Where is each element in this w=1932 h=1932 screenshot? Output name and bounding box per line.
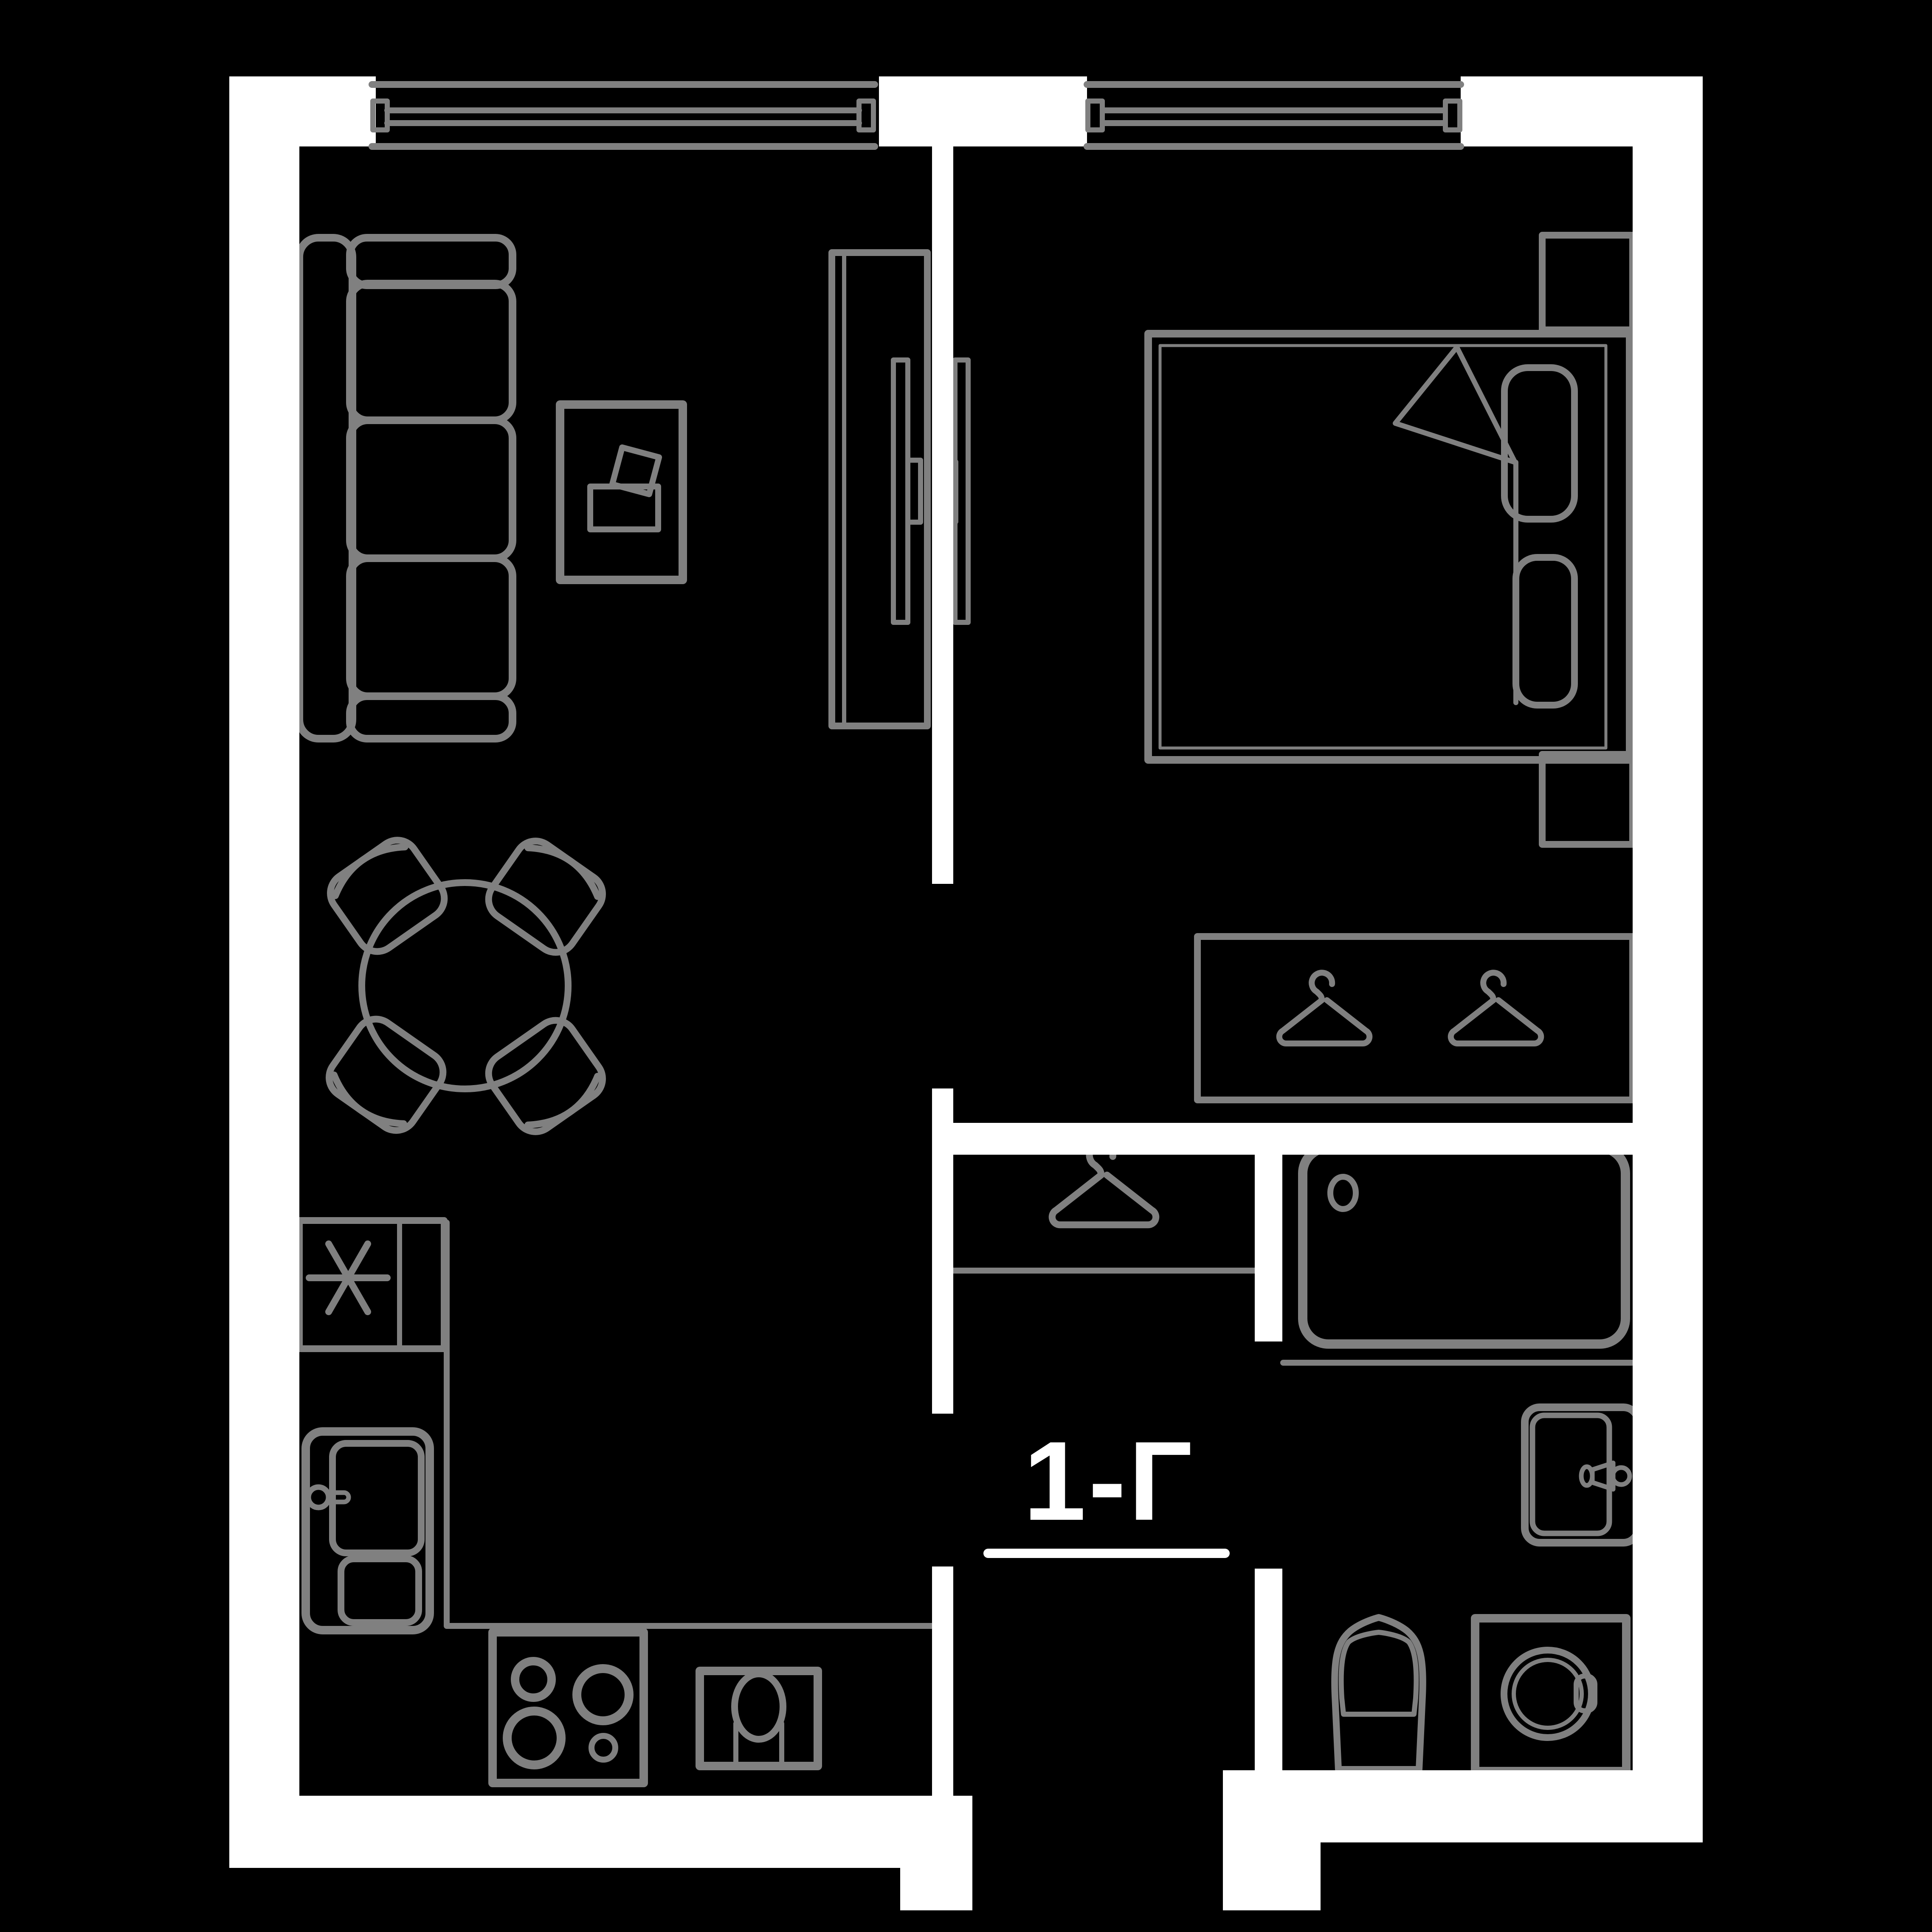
hanger-icon — [1279, 973, 1370, 1043]
tv-unit — [832, 253, 927, 726]
bathtub-drain-icon — [1330, 1177, 1356, 1209]
sink-basin-main — [332, 1443, 421, 1553]
kitchen-counter-line — [447, 1223, 932, 1626]
washing-machine-body — [1475, 1618, 1626, 1771]
bedside-table-bottom — [1542, 754, 1633, 844]
hanger-icon — [1451, 973, 1541, 1043]
kitchen-sink — [306, 1431, 430, 1630]
fridge — [299, 1221, 444, 1349]
wall-right — [1633, 76, 1703, 1842]
wall-bedroom-south — [953, 1123, 1633, 1155]
stove — [493, 1632, 644, 1783]
chair-back — [528, 1076, 605, 1136]
wall-living-bedroom — [932, 146, 953, 884]
hall-closet — [953, 1143, 1255, 1271]
blanket-fold — [1395, 347, 1515, 462]
dining-table — [362, 883, 568, 1089]
sofa-armrest-bottom — [350, 696, 513, 739]
burner — [514, 1660, 552, 1699]
wall-bathroom-west-lower — [1255, 1569, 1282, 1772]
entry-pier-left — [900, 1796, 972, 1910]
wall-left — [229, 76, 299, 1868]
wardrobe — [1197, 936, 1633, 1100]
burner-inner — [518, 1664, 549, 1695]
burner — [591, 1736, 615, 1760]
wardrobe-body — [1197, 936, 1633, 1100]
sofa — [299, 238, 513, 739]
dining-chair — [481, 1012, 611, 1140]
wall-bottom-left — [229, 1796, 953, 1868]
pillow — [1516, 557, 1574, 705]
unit-label: 1-Г — [983, 1418, 1230, 1558]
fridge-body — [299, 1221, 444, 1349]
washing-machine-drum-inner — [1514, 1660, 1582, 1728]
window-bedroom — [1087, 84, 1461, 146]
burner-inner — [510, 1714, 558, 1762]
entry-pier-right — [1223, 1770, 1321, 1910]
sofa-cushion — [350, 284, 513, 420]
dining-set — [321, 832, 611, 1139]
toilet-seat — [1341, 1632, 1417, 1714]
washing-machine — [1475, 1618, 1626, 1771]
window-living-room — [372, 84, 875, 146]
sink-basin-small — [341, 1559, 419, 1623]
sink-basin — [1532, 1415, 1609, 1533]
bathtub — [1283, 1148, 1632, 1363]
sink-cabinet — [306, 1431, 430, 1630]
coffee-table — [560, 405, 683, 580]
wall-top-middle — [879, 76, 1087, 146]
chair-back — [327, 836, 405, 896]
kitchen-appliance — [700, 1671, 818, 1766]
wall-hall-west-lower — [932, 1566, 953, 1798]
window-frame-end — [859, 101, 873, 130]
faucet-icon — [308, 1487, 329, 1507]
hanger-icon — [1052, 1143, 1156, 1225]
dining-chair — [322, 832, 452, 959]
snowflake-icon — [309, 1244, 387, 1312]
bedside-table-top — [1542, 235, 1633, 330]
window-frame-end — [1088, 101, 1102, 130]
wall-bathroom-west-upper — [1255, 1155, 1282, 1341]
sofa-backrest — [299, 238, 352, 739]
sofa-cushion — [350, 420, 513, 558]
toilet — [1335, 1617, 1423, 1769]
unit-label-underline — [983, 1549, 1230, 1558]
chair-back — [528, 837, 605, 897]
burner — [576, 1668, 630, 1722]
sofa-armrest-top — [350, 238, 513, 285]
wall-hall-west-upper — [932, 1088, 953, 1414]
bathroom-sink — [1525, 1407, 1638, 1543]
bed-mattress — [1160, 346, 1606, 748]
coffee-table-top — [560, 405, 683, 580]
window-frame-end — [1445, 101, 1460, 130]
bed — [1148, 235, 1633, 844]
floor-plan-canvas: 1-Г — [0, 0, 1932, 1932]
wall-top-left — [229, 76, 376, 146]
dining-chair — [321, 1011, 451, 1139]
unit-label-text: 1-Г — [1023, 1418, 1195, 1544]
chair-back — [326, 1075, 403, 1135]
tv-living-bracket — [908, 460, 921, 522]
appliance-dial — [735, 1674, 783, 1739]
burner-inner — [580, 1672, 626, 1718]
dining-chair — [481, 833, 611, 960]
bed-frame — [1148, 334, 1630, 760]
walls — [229, 76, 1703, 1910]
sofa-cushion — [350, 558, 513, 696]
burner — [506, 1710, 562, 1766]
floor-plan: 1-Г — [0, 0, 1932, 1932]
window-frame-end — [373, 101, 387, 130]
appliance-body — [700, 1671, 818, 1766]
